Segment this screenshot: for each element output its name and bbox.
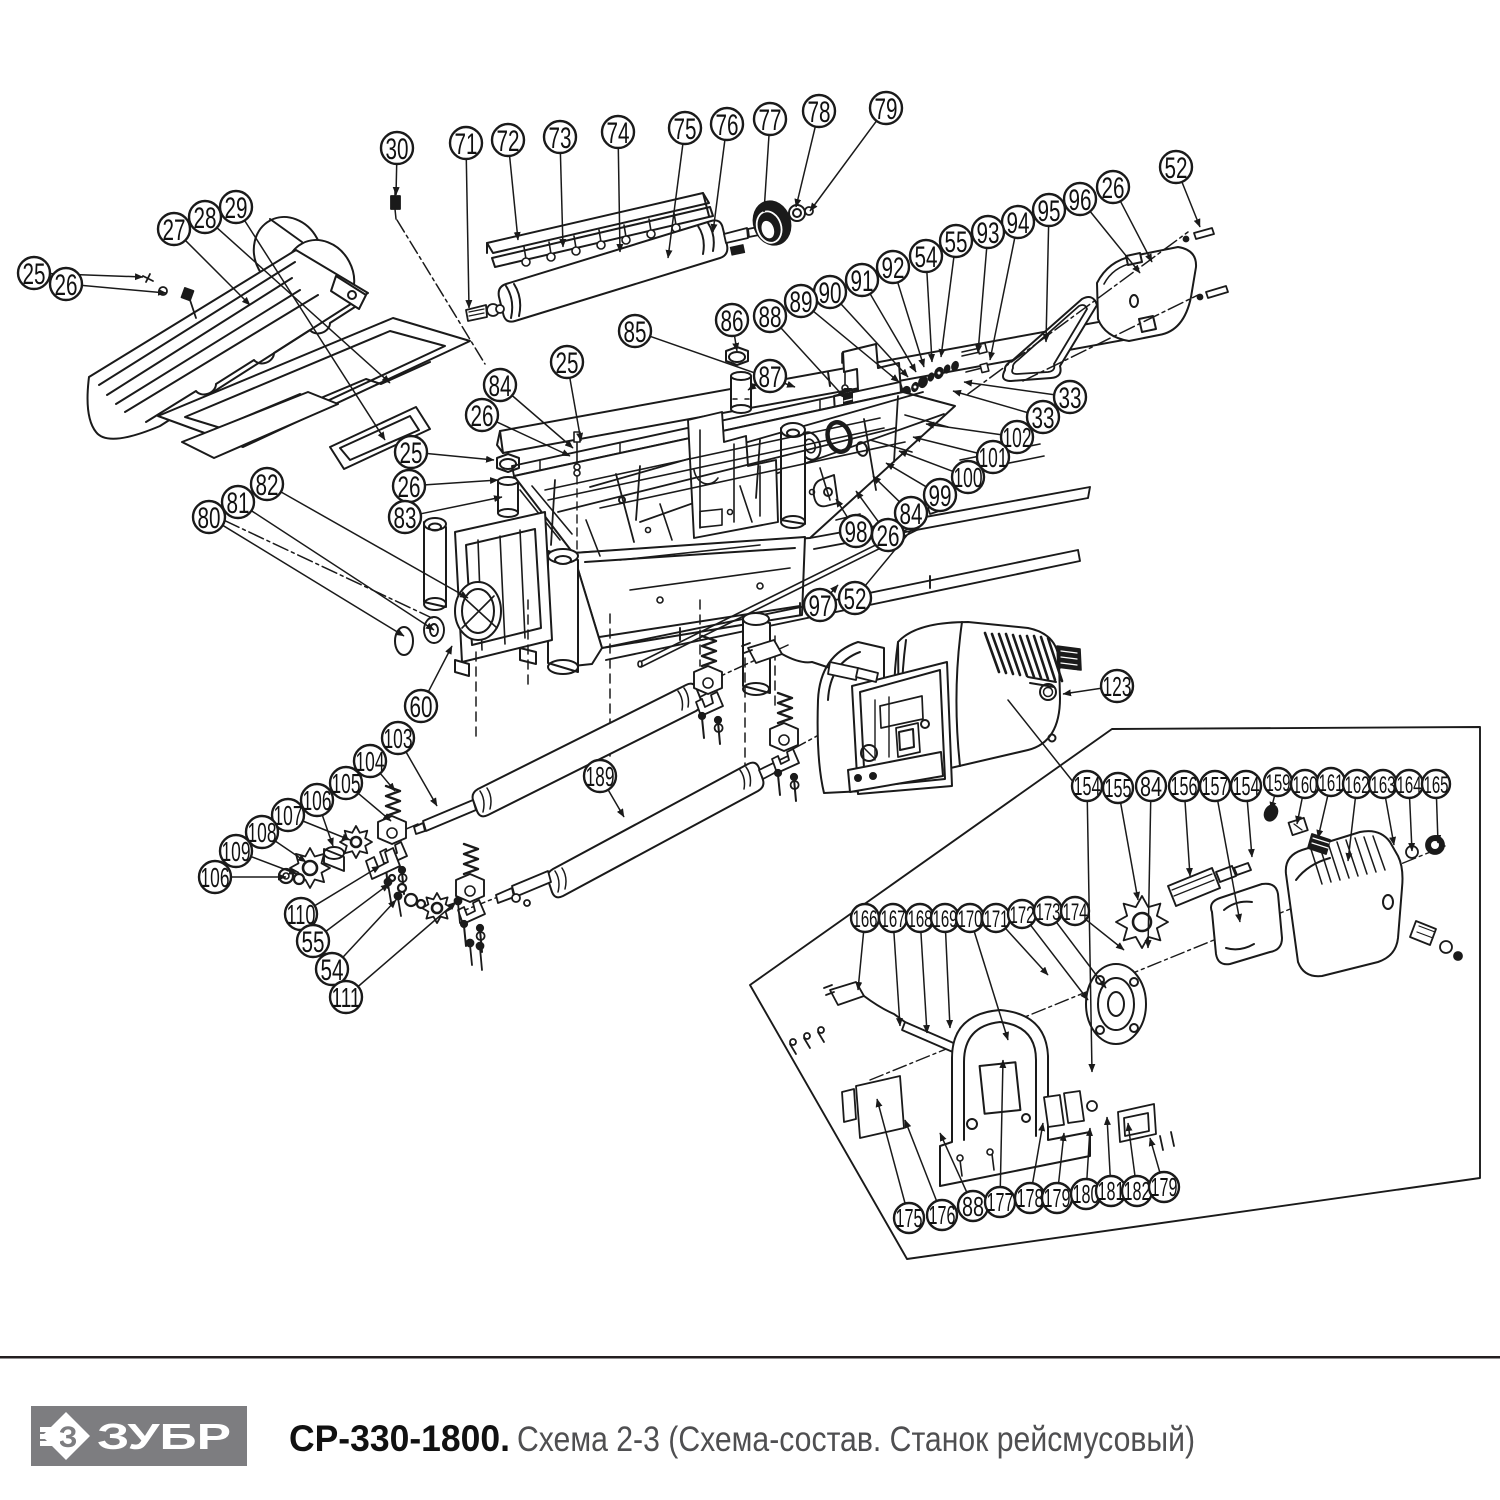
svg-text:84: 84	[489, 370, 512, 403]
svg-text:95: 95	[1038, 195, 1061, 228]
svg-text:87: 87	[759, 361, 782, 394]
svg-text:98: 98	[845, 516, 868, 549]
svg-text:30: 30	[386, 133, 409, 166]
svg-text:99: 99	[929, 480, 952, 513]
svg-text:52: 52	[1165, 152, 1188, 185]
svg-text:173: 173	[1036, 899, 1061, 926]
svg-text:55: 55	[945, 226, 968, 259]
svg-text:78: 78	[808, 96, 831, 129]
svg-text:89: 89	[790, 286, 813, 319]
svg-text:157: 157	[1202, 771, 1229, 801]
svg-text:163: 163	[1371, 772, 1396, 799]
svg-text:97: 97	[809, 590, 832, 623]
svg-text:54: 54	[915, 241, 938, 274]
svg-text:26: 26	[55, 269, 78, 302]
svg-text:25: 25	[400, 437, 423, 470]
svg-text:174: 174	[1063, 899, 1088, 926]
svg-text:111: 111	[332, 982, 361, 1013]
svg-text:80: 80	[198, 502, 221, 535]
svg-text:164: 164	[1397, 772, 1422, 799]
svg-text:91: 91	[851, 265, 874, 298]
svg-text:179: 179	[1044, 1183, 1071, 1213]
svg-text:156: 156	[1171, 771, 1198, 801]
svg-text:88: 88	[759, 301, 782, 334]
svg-text:179: 179	[1151, 1172, 1178, 1202]
svg-text:171: 171	[984, 906, 1009, 933]
svg-text:178: 178	[1017, 1183, 1044, 1213]
svg-text:25: 25	[23, 258, 46, 291]
svg-text:79: 79	[875, 93, 898, 126]
svg-text:26: 26	[1102, 172, 1125, 205]
svg-text:82: 82	[256, 469, 279, 502]
svg-text:165: 165	[1424, 772, 1449, 799]
svg-text:189: 189	[586, 761, 615, 792]
svg-text:26: 26	[398, 471, 421, 504]
svg-text:166: 166	[853, 906, 878, 933]
svg-text:85: 85	[624, 316, 647, 349]
svg-text:161: 161	[1319, 770, 1344, 797]
svg-text:92: 92	[882, 252, 905, 285]
svg-text:100: 100	[954, 462, 983, 493]
svg-text:170: 170	[958, 906, 983, 933]
svg-text:26: 26	[877, 520, 900, 553]
svg-text:81: 81	[227, 487, 250, 520]
svg-text:175: 175	[896, 1203, 923, 1233]
svg-text:176: 176	[929, 1200, 956, 1230]
svg-text:72: 72	[497, 125, 520, 158]
svg-text:168: 168	[908, 906, 933, 933]
svg-text:169: 169	[933, 906, 958, 933]
svg-text:26: 26	[471, 400, 494, 433]
svg-text:154: 154	[1233, 771, 1260, 801]
svg-text:76: 76	[716, 109, 739, 142]
svg-text:60: 60	[410, 691, 433, 724]
svg-text:29: 29	[225, 192, 248, 225]
svg-text:71: 71	[455, 128, 478, 161]
svg-text:106: 106	[303, 785, 332, 816]
svg-text:94: 94	[1007, 207, 1030, 240]
svg-text:93: 93	[977, 217, 1000, 250]
svg-text:154: 154	[1074, 771, 1101, 801]
svg-text:77: 77	[759, 104, 782, 137]
svg-text:ЗУБР: ЗУБР	[97, 1416, 231, 1457]
svg-text:108: 108	[248, 817, 277, 848]
svg-text:83: 83	[394, 502, 417, 535]
svg-text:159: 159	[1266, 770, 1291, 797]
svg-text:84: 84	[1140, 771, 1162, 802]
svg-text:172: 172	[1010, 902, 1035, 929]
svg-text:84: 84	[900, 498, 923, 531]
svg-text:33: 33	[1032, 402, 1055, 435]
svg-text:Схема 2-3 (Схема-состав. Стано: Схема 2-3 (Схема-состав. Станок рейсмусо…	[517, 1420, 1195, 1459]
svg-text:75: 75	[674, 113, 697, 146]
svg-text:27: 27	[163, 214, 186, 247]
svg-text:106: 106	[201, 862, 230, 893]
svg-text:52: 52	[844, 583, 867, 616]
svg-text:90: 90	[819, 277, 842, 310]
svg-text:88: 88	[962, 1191, 984, 1222]
svg-text:123: 123	[1103, 671, 1132, 702]
svg-text:160: 160	[1293, 772, 1318, 799]
svg-text:28: 28	[194, 202, 217, 235]
svg-text:177: 177	[987, 1187, 1014, 1217]
svg-text:86: 86	[721, 305, 744, 338]
svg-text:103: 103	[384, 723, 413, 754]
svg-text:167: 167	[881, 906, 906, 933]
svg-text:182: 182	[1124, 1176, 1151, 1206]
svg-text:74: 74	[607, 117, 630, 150]
svg-text:96: 96	[1069, 184, 1092, 217]
svg-text:155: 155	[1105, 773, 1132, 803]
svg-text:73: 73	[549, 122, 572, 155]
svg-text:СР-330-1800.: СР-330-1800.	[289, 1418, 510, 1459]
svg-text:181: 181	[1098, 1176, 1125, 1206]
svg-text:25: 25	[556, 347, 579, 380]
svg-text:105: 105	[332, 768, 361, 799]
svg-text:162: 162	[1345, 772, 1370, 799]
svg-text:33: 33	[1059, 382, 1082, 415]
